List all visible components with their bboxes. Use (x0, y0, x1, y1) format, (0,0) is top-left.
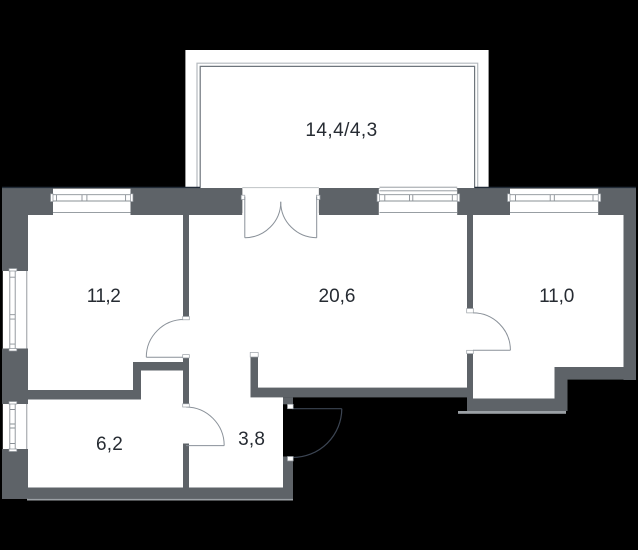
svg-text:14,4/4,3: 14,4/4,3 (305, 120, 377, 141)
svg-text:6,2: 6,2 (96, 434, 123, 455)
svg-text:3,8: 3,8 (238, 429, 265, 450)
svg-text:20,6: 20,6 (319, 286, 356, 307)
svg-text:11,2: 11,2 (87, 286, 121, 307)
svg-text:11,0: 11,0 (539, 286, 574, 307)
